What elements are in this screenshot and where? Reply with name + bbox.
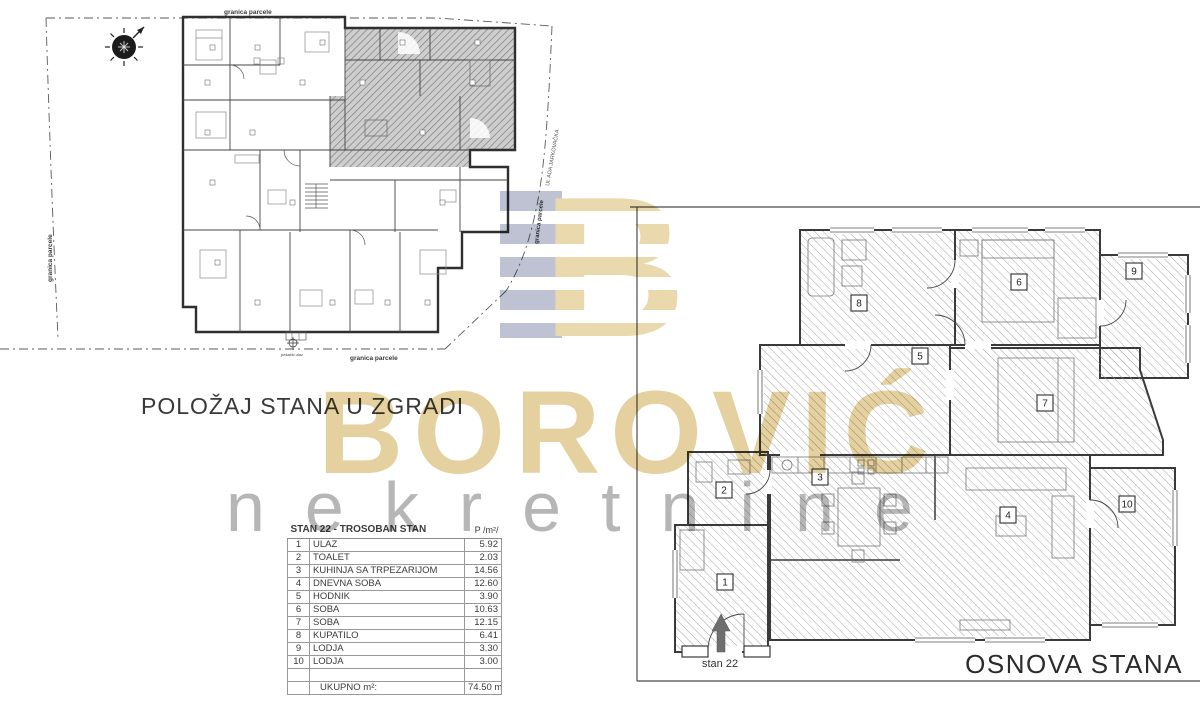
table-cell: 9 — [288, 643, 310, 656]
table-row: 7SOBA12.15 — [288, 617, 502, 630]
table-cell: KUPATILO — [310, 630, 465, 643]
table-cell: 6.41 — [465, 630, 502, 643]
stair-core — [305, 184, 328, 208]
table-cell: DNEVNA SOBA — [310, 578, 465, 591]
room-chip-number: 4 — [1005, 511, 1011, 522]
table-cell: TOALET — [310, 552, 465, 565]
hatched-apartment-region — [330, 28, 515, 167]
table-cell: 2 — [288, 552, 310, 565]
room-chip-number: 7 — [1042, 399, 1048, 410]
table-cell: 8 — [288, 630, 310, 643]
table-title: STAN 22 - TROSOBAN STAN — [288, 522, 465, 539]
left-plan-title: POLOŽAJ STANA U ZGRADI — [141, 393, 464, 420]
room-chip-number: 1 — [722, 578, 728, 589]
table-cell: 3.90 — [465, 591, 502, 604]
entrance-label: pešački ulaz — [281, 352, 303, 357]
room-chip-number: 8 — [856, 299, 862, 310]
table-cell: HODNIK — [310, 591, 465, 604]
room-areas-table: STAN 22 - TROSOBAN STAN P /m²/ 1ULAZ5.92… — [287, 522, 501, 695]
table-cell: 4 — [288, 578, 310, 591]
room-chip-number: 10 — [1121, 500, 1133, 511]
table-cell: 10 — [288, 656, 310, 669]
table-row: 10LODJA3.00 — [288, 656, 502, 669]
table-cell: LODJA — [310, 656, 465, 669]
room-chip-number: 2 — [721, 486, 727, 497]
table-cell: 5.92 — [465, 539, 502, 552]
right-plan-title: OSNOVA STANA — [965, 649, 1183, 679]
table-row: 8KUPATILO6.41 — [288, 630, 502, 643]
table-cell: 1 — [288, 539, 310, 552]
room-chip-number: 3 — [817, 473, 823, 484]
table-total-row: UKUPNO m²: 74.50 m² — [288, 682, 502, 695]
table-cell: 6 — [288, 604, 310, 617]
table-cell: SOBA — [310, 617, 465, 630]
total-value: 74.50 m² — [465, 682, 502, 695]
table-cell: 12.60 — [465, 578, 502, 591]
table-row: 9LODJA3.30 — [288, 643, 502, 656]
table-row: 4DNEVNA SOBA12.60 — [288, 578, 502, 591]
table-cell: 10.63 — [465, 604, 502, 617]
total-label: UKUPNO m²: — [310, 682, 465, 695]
table-cell: ULAZ — [310, 539, 465, 552]
pedestrian-entrance: pešački ulaz — [281, 332, 306, 357]
table-cell: 2.03 — [465, 552, 502, 565]
table-row: 6SOBA10.63 — [288, 604, 502, 617]
compass-icon — [105, 27, 144, 66]
building-situation-plan: granica parcele granica parcele granica … — [0, 0, 600, 400]
apartment-label: stan 22 — [702, 658, 738, 670]
street-label: Ul. ADA JARKOVAČKA — [544, 129, 561, 187]
scanned-floorplan-page: { "page": {"background": "#ffffff"}, "wa… — [0, 0, 1200, 720]
room-chip-number: 6 — [1016, 278, 1022, 289]
table-cell: 3 — [288, 565, 310, 578]
room-chip-number: 5 — [917, 352, 923, 363]
table-cell: KUHINJA SA TRPEZARIJOM — [310, 565, 465, 578]
room-chip-number: 9 — [1131, 267, 1137, 278]
table-cell: 12.15 — [465, 617, 502, 630]
boundary-label-right: granica parcele — [534, 199, 545, 244]
table-cell: SOBA — [310, 604, 465, 617]
boundary-label-bottom: granica parcele — [350, 355, 398, 362]
table-cell: 14.56 — [465, 565, 502, 578]
table-cell: 7 — [288, 617, 310, 630]
table-cell: 3.00 — [465, 656, 502, 669]
apartment-plan: 12345678910 stan 22 OSNOVA STANA — [630, 200, 1200, 700]
table-row: 5HODNIK3.90 — [288, 591, 502, 604]
table-spacer-row — [288, 669, 502, 682]
table-row: 3KUHINJA SA TRPEZARIJOM14.56 — [288, 565, 502, 578]
table-cell: 5 — [288, 591, 310, 604]
boundary-label-top: granica parcele — [224, 9, 272, 16]
table-row: 2TOALET2.03 — [288, 552, 502, 565]
table-cell: 3.30 — [465, 643, 502, 656]
table-row: 1ULAZ5.92 — [288, 539, 502, 552]
room-regions — [675, 230, 1188, 652]
boundary-label-left: granica parcele — [47, 234, 54, 282]
table-area-header: P /m²/ — [465, 522, 502, 539]
table-cell: LODJA — [310, 643, 465, 656]
